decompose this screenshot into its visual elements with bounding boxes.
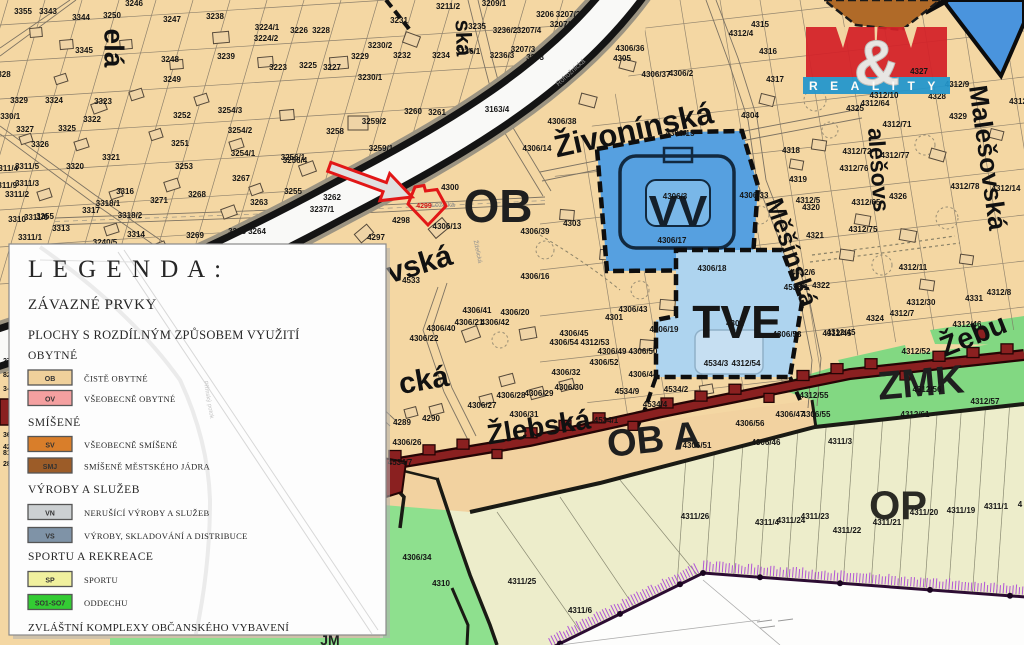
svg-text:4312: 4312 xyxy=(1009,97,1024,106)
svg-text:4321: 4321 xyxy=(806,231,824,240)
svg-text:4289: 4289 xyxy=(393,418,411,427)
svg-text:3317: 3317 xyxy=(82,206,100,215)
svg-text:4306/32: 4306/32 xyxy=(552,368,581,377)
svg-text:4331: 4331 xyxy=(965,294,983,303)
svg-text:4312/11: 4312/11 xyxy=(899,263,928,272)
svg-text:4311/19: 4311/19 xyxy=(947,506,976,515)
svg-text:4306/13: 4306/13 xyxy=(433,222,462,231)
svg-text:3327: 3327 xyxy=(16,125,34,134)
svg-text:L E G E N D A :: L E G E N D A : xyxy=(28,256,223,283)
svg-text:4312/56: 4312/56 xyxy=(913,385,942,394)
svg-text:PLOCHY S ROZDÍLNÝM ZPŮSOBEM VY: PLOCHY S ROZDÍLNÝM ZPŮSOBEM VYUŽITÍ xyxy=(28,327,300,342)
svg-text:3255: 3255 xyxy=(36,212,54,221)
svg-text:ZÁVAZNÉ PRVKY: ZÁVAZNÉ PRVKY xyxy=(28,296,157,313)
svg-text:4319: 4319 xyxy=(789,175,807,184)
svg-text:NERUŠÍCÍ VÝROBY A SLUŽEB: NERUŠÍCÍ VÝROBY A SLUŽEB xyxy=(84,508,210,518)
svg-text:3254/2: 3254/2 xyxy=(228,126,253,135)
svg-text:3228: 3228 xyxy=(312,26,330,35)
svg-text:4306/41: 4306/41 xyxy=(463,306,492,315)
svg-text:3224/2: 3224/2 xyxy=(254,34,279,43)
svg-text:3321: 3321 xyxy=(102,153,120,162)
svg-text:4534/1: 4534/1 xyxy=(594,416,619,425)
svg-text:3264: 3264 xyxy=(248,227,266,236)
svg-text:4302: 4302 xyxy=(726,319,744,328)
svg-text:VŠEOBECNĚ OBYTNÉ: VŠEOBECNĚ OBYTNÉ xyxy=(84,394,175,404)
svg-text:3311/9: 3311/9 xyxy=(0,181,18,190)
svg-text:4312/53: 4312/53 xyxy=(581,338,610,347)
svg-text:4306/16: 4306/16 xyxy=(521,272,550,281)
svg-text:4534/3: 4534/3 xyxy=(704,359,729,368)
svg-text:3311/3: 3311/3 xyxy=(15,179,40,188)
svg-text:3247: 3247 xyxy=(163,15,181,24)
svg-text:4306/49: 4306/49 xyxy=(598,347,627,356)
svg-text:4312/14: 4312/14 xyxy=(992,184,1021,193)
svg-text:4312/55: 4312/55 xyxy=(800,391,829,400)
svg-text:3224/1: 3224/1 xyxy=(255,23,280,32)
svg-text:4534/9: 4534/9 xyxy=(615,387,640,396)
svg-text:4298: 4298 xyxy=(392,216,410,225)
svg-text:4317: 4317 xyxy=(766,75,784,84)
svg-text:3258: 3258 xyxy=(326,127,344,136)
svg-text:4312/72: 4312/72 xyxy=(843,147,872,156)
svg-text:3355: 3355 xyxy=(14,7,32,16)
svg-text:4306/31: 4306/31 xyxy=(510,410,539,419)
svg-text:3225: 3225 xyxy=(299,61,317,70)
svg-text:4311/22: 4311/22 xyxy=(833,526,862,535)
svg-text:ZVLÁŠTNÍ KOMPLEXY OBČANSKÉHO V: ZVLÁŠTNÍ KOMPLEXY OBČANSKÉHO VYBAVENÍ xyxy=(28,622,289,634)
svg-text:4311/6: 4311/6 xyxy=(568,606,593,615)
svg-text:ČISTĚ OBYTNÉ: ČISTĚ OBYTNÉ xyxy=(84,374,148,384)
svg-text:SMÍŠENĚ MĚSTSKÉHO JÁDRA: SMÍŠENĚ MĚSTSKÉHO JÁDRA xyxy=(84,462,210,472)
svg-text:3229: 3229 xyxy=(351,52,369,61)
svg-text:4312/10: 4312/10 xyxy=(870,91,899,100)
svg-text:4312/8: 4312/8 xyxy=(987,288,1012,297)
svg-text:3211/2: 3211/2 xyxy=(436,2,461,11)
svg-text:OB: OB xyxy=(464,180,533,232)
svg-text:4320: 4320 xyxy=(802,203,820,212)
svg-text:4306/2: 4306/2 xyxy=(669,69,694,78)
svg-text:4306/30: 4306/30 xyxy=(555,383,584,392)
svg-text:3259/2: 3259/2 xyxy=(362,117,387,126)
svg-text:3254/1: 3254/1 xyxy=(231,149,256,158)
svg-text:3343: 3343 xyxy=(39,7,57,16)
svg-text:3239: 3239 xyxy=(217,52,235,61)
svg-text:VN: VN xyxy=(45,511,55,518)
svg-text:elá: elá xyxy=(99,29,130,68)
svg-text:4311/23: 4311/23 xyxy=(801,512,830,521)
svg-text:4306/28: 4306/28 xyxy=(497,391,526,400)
svg-text:3322: 3322 xyxy=(83,115,101,124)
svg-text:3206: 3206 xyxy=(536,10,554,19)
svg-text:4306/39: 4306/39 xyxy=(521,227,550,236)
svg-text:4535/1: 4535/1 xyxy=(784,283,809,292)
svg-text:4: 4 xyxy=(1018,500,1023,509)
svg-text:4311/26: 4311/26 xyxy=(681,512,710,521)
svg-text:3268: 3268 xyxy=(188,190,206,199)
svg-text:4306/42: 4306/42 xyxy=(481,318,510,327)
svg-text:3232: 3232 xyxy=(393,51,411,60)
svg-text:3209/1: 3209/1 xyxy=(482,0,507,8)
svg-text:4318: 4318 xyxy=(782,146,800,155)
svg-text:4312/6: 4312/6 xyxy=(791,268,816,277)
svg-text:3311/5: 3311/5 xyxy=(15,162,40,171)
svg-text:OB: OB xyxy=(45,376,56,383)
svg-text:4306/44: 4306/44 xyxy=(629,370,658,379)
svg-text:3230/1: 3230/1 xyxy=(358,73,383,82)
svg-text:4306/19: 4306/19 xyxy=(650,325,679,334)
svg-text:4312/4: 4312/4 xyxy=(729,29,754,38)
svg-text:3246: 3246 xyxy=(125,0,143,8)
svg-text:4322: 4322 xyxy=(812,281,830,290)
svg-text:SV: SV xyxy=(45,443,55,450)
svg-text:4306/3: 4306/3 xyxy=(663,192,688,201)
svg-text:3251: 3251 xyxy=(171,139,189,148)
svg-text:3256/4: 3256/4 xyxy=(283,156,308,165)
svg-text:4306/50: 4306/50 xyxy=(629,347,658,356)
svg-text:3234: 3234 xyxy=(432,51,450,60)
svg-text:4306/53: 4306/53 xyxy=(773,330,802,339)
svg-text:3227: 3227 xyxy=(323,63,341,72)
svg-text:3325: 3325 xyxy=(58,124,76,133)
svg-text:4312/78: 4312/78 xyxy=(951,182,980,191)
svg-text:4306/38: 4306/38 xyxy=(548,117,577,126)
svg-text:3249: 3249 xyxy=(163,75,181,84)
svg-text:4305: 4305 xyxy=(613,54,631,63)
svg-text:SMÍŠENÉ: SMÍŠENÉ xyxy=(28,415,81,429)
svg-text:3237/1: 3237/1 xyxy=(310,205,335,214)
svg-text:4303: 4303 xyxy=(563,219,581,228)
svg-text:3255: 3255 xyxy=(284,187,302,196)
svg-text:4306/15: 4306/15 xyxy=(666,129,695,138)
svg-text:328: 328 xyxy=(0,70,11,79)
svg-text:3207/2: 3207/2 xyxy=(556,10,581,19)
svg-text:4306/54: 4306/54 xyxy=(550,338,579,347)
svg-text:3329: 3329 xyxy=(10,96,28,105)
svg-text:4306/56: 4306/56 xyxy=(736,419,765,428)
svg-text:3236/2: 3236/2 xyxy=(493,26,518,35)
svg-text:4306/14: 4306/14 xyxy=(523,144,552,153)
svg-text:3248: 3248 xyxy=(161,55,179,64)
svg-text:VŠEOBECNĚ SMÍŠENÉ: VŠEOBECNĚ SMÍŠENÉ xyxy=(84,440,178,450)
svg-text:SPORTU A REKREACE: SPORTU A REKREACE xyxy=(28,551,153,563)
svg-text:OV: OV xyxy=(45,397,55,404)
svg-text:3163/4: 3163/4 xyxy=(485,105,510,114)
svg-text:4306/52: 4306/52 xyxy=(590,358,619,367)
svg-text:4312/57: 4312/57 xyxy=(971,397,1000,406)
svg-text:3326: 3326 xyxy=(31,140,49,149)
svg-text:SPORTU: SPORTU xyxy=(84,575,118,585)
svg-text:4315: 4315 xyxy=(751,20,769,29)
svg-text:4327: 4327 xyxy=(910,67,928,76)
svg-text:3318/2: 3318/2 xyxy=(118,211,143,220)
svg-text:3261: 3261 xyxy=(428,108,446,117)
svg-text:4312/61: 4312/61 xyxy=(901,410,930,419)
svg-text:3263: 3263 xyxy=(250,198,268,207)
svg-text:JM: JM xyxy=(320,632,339,645)
svg-text:4306/17: 4306/17 xyxy=(658,236,687,245)
svg-text:4306/26: 4306/26 xyxy=(393,438,422,447)
svg-text:3313: 3313 xyxy=(52,224,70,233)
svg-text:4304: 4304 xyxy=(741,111,759,120)
svg-text:3314: 3314 xyxy=(127,230,145,239)
svg-text:4301: 4301 xyxy=(605,313,623,322)
svg-text:4312/52: 4312/52 xyxy=(902,347,931,356)
svg-text:3324: 3324 xyxy=(45,96,63,105)
svg-text:4306/33: 4306/33 xyxy=(740,191,769,200)
svg-text:VÝROBY A SLUŽEB: VÝROBY A SLUŽEB xyxy=(28,482,140,496)
svg-text:4297: 4297 xyxy=(367,233,385,242)
svg-text:SO1-SO7: SO1-SO7 xyxy=(35,601,65,608)
svg-text:3265: 3265 xyxy=(228,227,246,236)
svg-text:4312/30: 4312/30 xyxy=(907,298,936,307)
svg-text:3203: 3203 xyxy=(526,53,544,62)
svg-text:4306/29: 4306/29 xyxy=(525,389,554,398)
svg-text:4534/4: 4534/4 xyxy=(643,400,668,409)
svg-text:ZMK: ZMK xyxy=(876,357,966,408)
svg-text:4306/51: 4306/51 xyxy=(683,441,712,450)
svg-text:4306/18: 4306/18 xyxy=(698,264,727,273)
svg-text:4311/20: 4311/20 xyxy=(910,508,939,517)
svg-text:OBYTNÉ: OBYTNÉ xyxy=(28,348,78,362)
svg-text:4326: 4326 xyxy=(889,192,907,201)
svg-text:3253: 3253 xyxy=(175,162,193,171)
svg-text:3345: 3345 xyxy=(75,46,93,55)
svg-text:SMJ: SMJ xyxy=(43,464,58,471)
svg-text:4312/76: 4312/76 xyxy=(840,164,869,173)
svg-text:3250: 3250 xyxy=(103,11,121,20)
svg-text:4312/46: 4312/46 xyxy=(953,320,982,329)
svg-text:4306/40: 4306/40 xyxy=(427,324,456,333)
svg-text:4312/77: 4312/77 xyxy=(881,151,910,160)
svg-text:VÝROBY, SKLADOVÁNÍ A DISTRIBUC: VÝROBY, SKLADOVÁNÍ A DISTRIBUCE xyxy=(84,531,248,541)
svg-text:3231: 3231 xyxy=(390,16,408,25)
svg-text:4312/54: 4312/54 xyxy=(732,359,761,368)
svg-text:3316: 3316 xyxy=(116,187,134,196)
svg-text:4312/65: 4312/65 xyxy=(852,198,881,207)
svg-text:3259/1: 3259/1 xyxy=(369,144,394,153)
svg-text:4306/27: 4306/27 xyxy=(468,401,497,410)
svg-text:3235: 3235 xyxy=(468,22,486,31)
svg-text:4316: 4316 xyxy=(759,47,777,56)
svg-text:3226: 3226 xyxy=(290,26,308,35)
svg-text:4306/37: 4306/37 xyxy=(642,70,671,79)
svg-text:4312/45: 4312/45 xyxy=(823,329,852,338)
svg-text:4311/21: 4311/21 xyxy=(873,518,902,527)
svg-text:3323: 3323 xyxy=(94,97,112,106)
svg-text:3207/4: 3207/4 xyxy=(517,26,542,35)
svg-text:4306/22: 4306/22 xyxy=(410,334,439,343)
svg-text:3269: 3269 xyxy=(186,231,204,240)
svg-text:3311/2: 3311/2 xyxy=(5,190,30,199)
svg-text:4533: 4533 xyxy=(402,276,420,285)
svg-text:SP: SP xyxy=(45,578,55,585)
svg-text:4310: 4310 xyxy=(432,579,450,588)
svg-text:3262: 3262 xyxy=(323,193,341,202)
svg-text:3238: 3238 xyxy=(206,12,224,21)
svg-text:4312/7: 4312/7 xyxy=(890,309,915,318)
svg-text:3330/1: 3330/1 xyxy=(0,112,21,121)
svg-text:4312/71: 4312/71 xyxy=(883,120,912,129)
svg-text:3260: 3260 xyxy=(404,107,422,116)
svg-text:3320: 3320 xyxy=(66,162,84,171)
svg-text:4311/1: 4311/1 xyxy=(984,502,1009,511)
svg-text:3236/1: 3236/1 xyxy=(456,47,481,56)
svg-text:3230/2: 3230/2 xyxy=(368,41,393,50)
svg-text:3252: 3252 xyxy=(173,111,191,120)
svg-text:3344: 3344 xyxy=(72,13,90,22)
svg-text:4290: 4290 xyxy=(422,414,440,423)
svg-text:4306/55: 4306/55 xyxy=(802,410,831,419)
svg-text:VS: VS xyxy=(45,534,55,541)
svg-text:4306/43: 4306/43 xyxy=(619,305,648,314)
svg-text:4311/25: 4311/25 xyxy=(508,577,537,586)
svg-text:4534/7: 4534/7 xyxy=(388,458,413,467)
svg-text:4324: 4324 xyxy=(866,314,884,323)
svg-text:4534/2: 4534/2 xyxy=(664,385,689,394)
svg-text:3223: 3223 xyxy=(269,63,287,72)
svg-text:4306/34: 4306/34 xyxy=(403,553,432,562)
svg-text:ODDECHU: ODDECHU xyxy=(84,598,128,608)
svg-text:3311/1: 3311/1 xyxy=(18,233,43,242)
svg-text:4306/36: 4306/36 xyxy=(616,44,645,53)
svg-text:4311/3: 4311/3 xyxy=(828,437,853,446)
svg-text:4300: 4300 xyxy=(441,183,459,192)
svg-text:4299: 4299 xyxy=(416,203,432,210)
svg-text:3267: 3267 xyxy=(232,174,250,183)
svg-text:3207/1: 3207/1 xyxy=(550,20,575,29)
svg-text:4306/20: 4306/20 xyxy=(501,308,530,317)
svg-text:4306/45: 4306/45 xyxy=(560,329,589,338)
svg-text:4306/46: 4306/46 xyxy=(752,438,781,447)
svg-text:3254/3: 3254/3 xyxy=(218,106,243,115)
svg-text:4329: 4329 xyxy=(949,112,967,121)
svg-text:4312/75: 4312/75 xyxy=(849,225,878,234)
svg-text:4312/64: 4312/64 xyxy=(861,99,890,108)
svg-text:3271: 3271 xyxy=(150,196,168,205)
